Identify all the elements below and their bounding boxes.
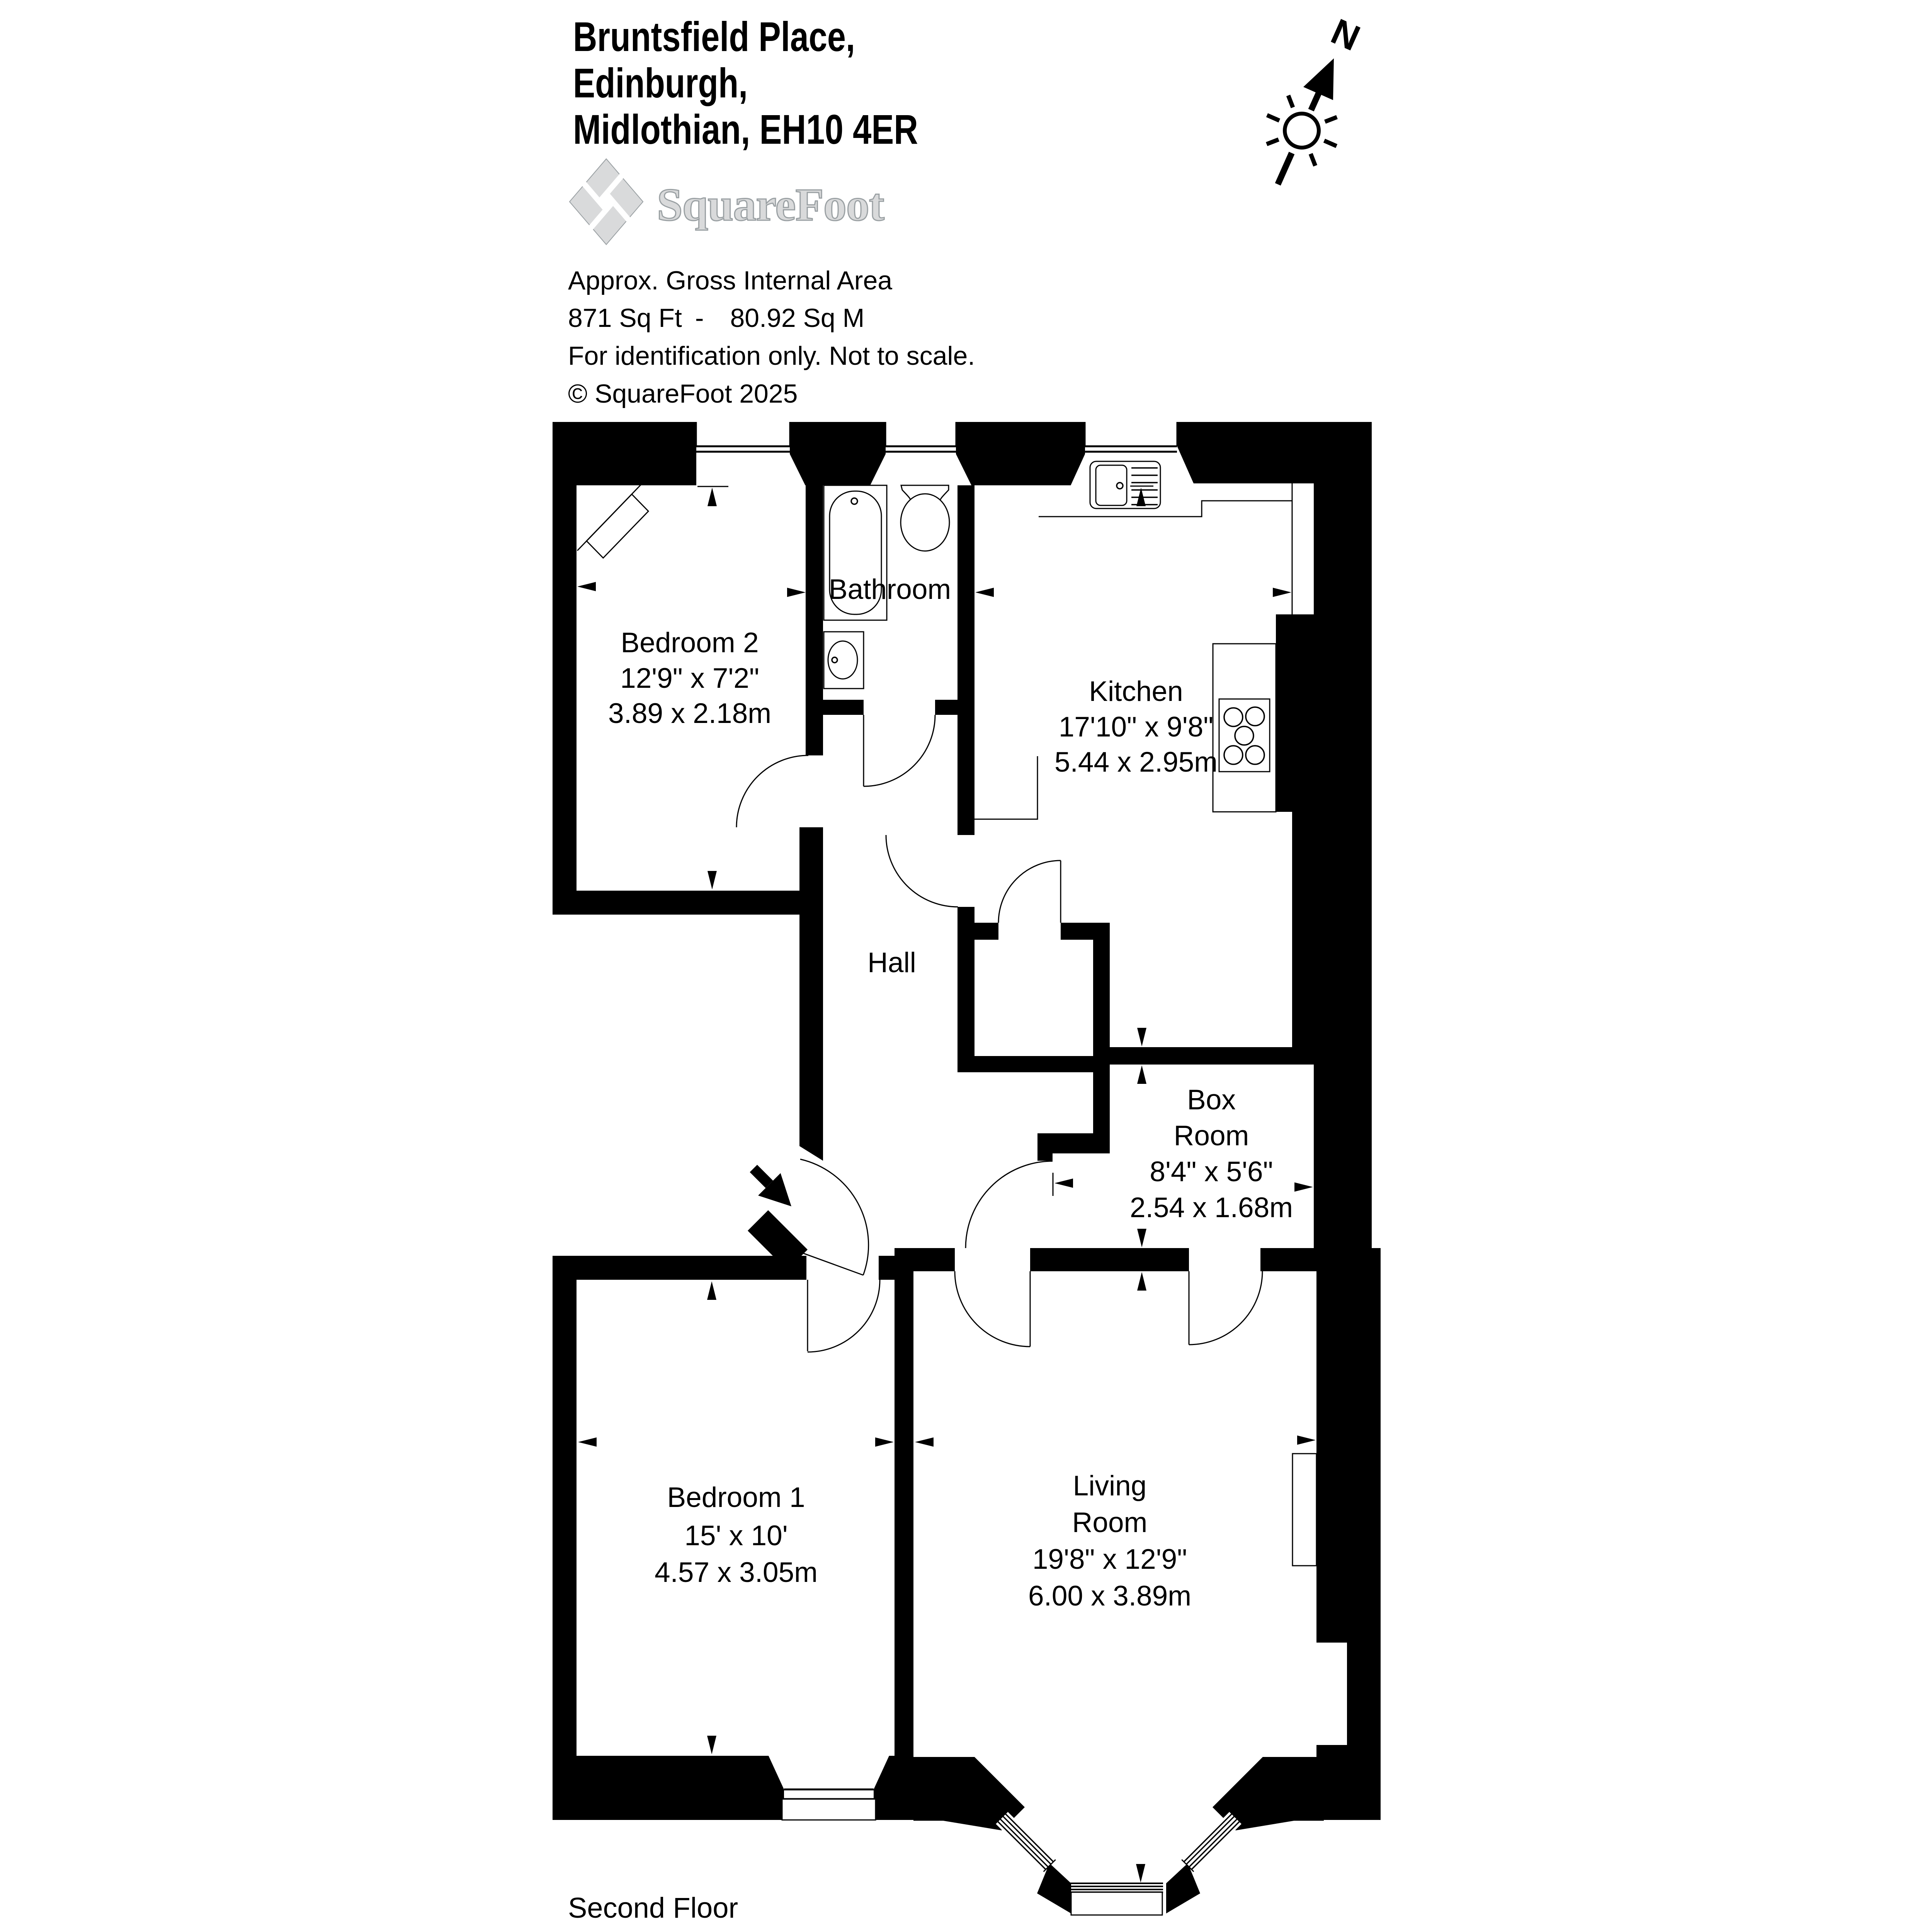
svg-text:© SquareFoot 2025: © SquareFoot 2025: [568, 379, 798, 408]
svg-text:17'10" x 9'8": 17'10" x 9'8": [1059, 711, 1213, 743]
svg-text:871 Sq Ft - 80.92 Sq M: 871 Sq Ft - 80.92 Sq M: [568, 303, 864, 333]
svg-text:Living: Living: [1073, 1470, 1147, 1502]
svg-text:Bruntsfield Place,: Bruntsfield Place,: [573, 13, 855, 60]
svg-text:SquareFoot: SquareFoot: [657, 179, 884, 230]
svg-text:5.44 x 2.95m: 5.44 x 2.95m: [1054, 747, 1218, 778]
svg-text:Room: Room: [1072, 1507, 1148, 1538]
svg-text:Room: Room: [1174, 1120, 1249, 1151]
svg-text:Box: Box: [1187, 1084, 1236, 1116]
svg-text:N: N: [1325, 11, 1366, 59]
svg-text:Bedroom 1: Bedroom 1: [667, 1482, 805, 1513]
svg-text:3.89 x 2.18m: 3.89 x 2.18m: [608, 698, 771, 729]
svg-text:Midlothian, EH10 4ER: Midlothian, EH10 4ER: [573, 106, 918, 153]
svg-text:For identification only. Not t: For identification only. Not to scale.: [568, 341, 975, 371]
svg-text:4.57 x 3.05m: 4.57 x 3.05m: [655, 1557, 818, 1588]
svg-text:Hall: Hall: [867, 947, 916, 978]
svg-text:15' x 10': 15' x 10': [684, 1520, 787, 1551]
svg-text:12'9" x 7'2": 12'9" x 7'2": [620, 663, 759, 694]
svg-text:Approx. Gross Internal Area: Approx. Gross Internal Area: [568, 266, 892, 295]
svg-text:6.00 x 3.89m: 6.00 x 3.89m: [1028, 1580, 1191, 1612]
svg-text:8'4" x 5'6": 8'4" x 5'6": [1150, 1156, 1273, 1187]
svg-text:Kitchen: Kitchen: [1089, 676, 1183, 707]
svg-text:19'8" x 12'9": 19'8" x 12'9": [1032, 1544, 1187, 1575]
svg-text:Second Floor: Second Floor: [568, 1892, 738, 1924]
svg-text:Bathroom: Bathroom: [829, 574, 951, 605]
svg-text:Edinburgh,: Edinburgh,: [573, 60, 748, 106]
svg-text:2.54 x 1.68m: 2.54 x 1.68m: [1130, 1192, 1293, 1223]
svg-text:Bedroom 2: Bedroom 2: [621, 627, 759, 658]
